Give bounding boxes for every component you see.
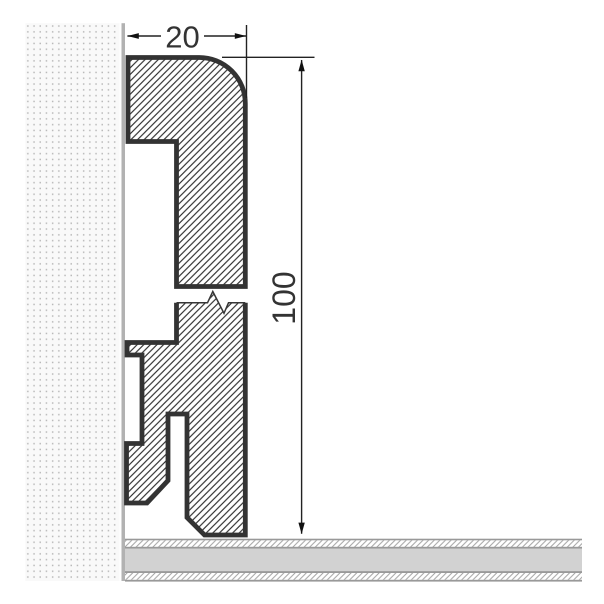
svg-text:20: 20	[165, 20, 199, 55]
svg-text:100: 100	[266, 271, 302, 324]
